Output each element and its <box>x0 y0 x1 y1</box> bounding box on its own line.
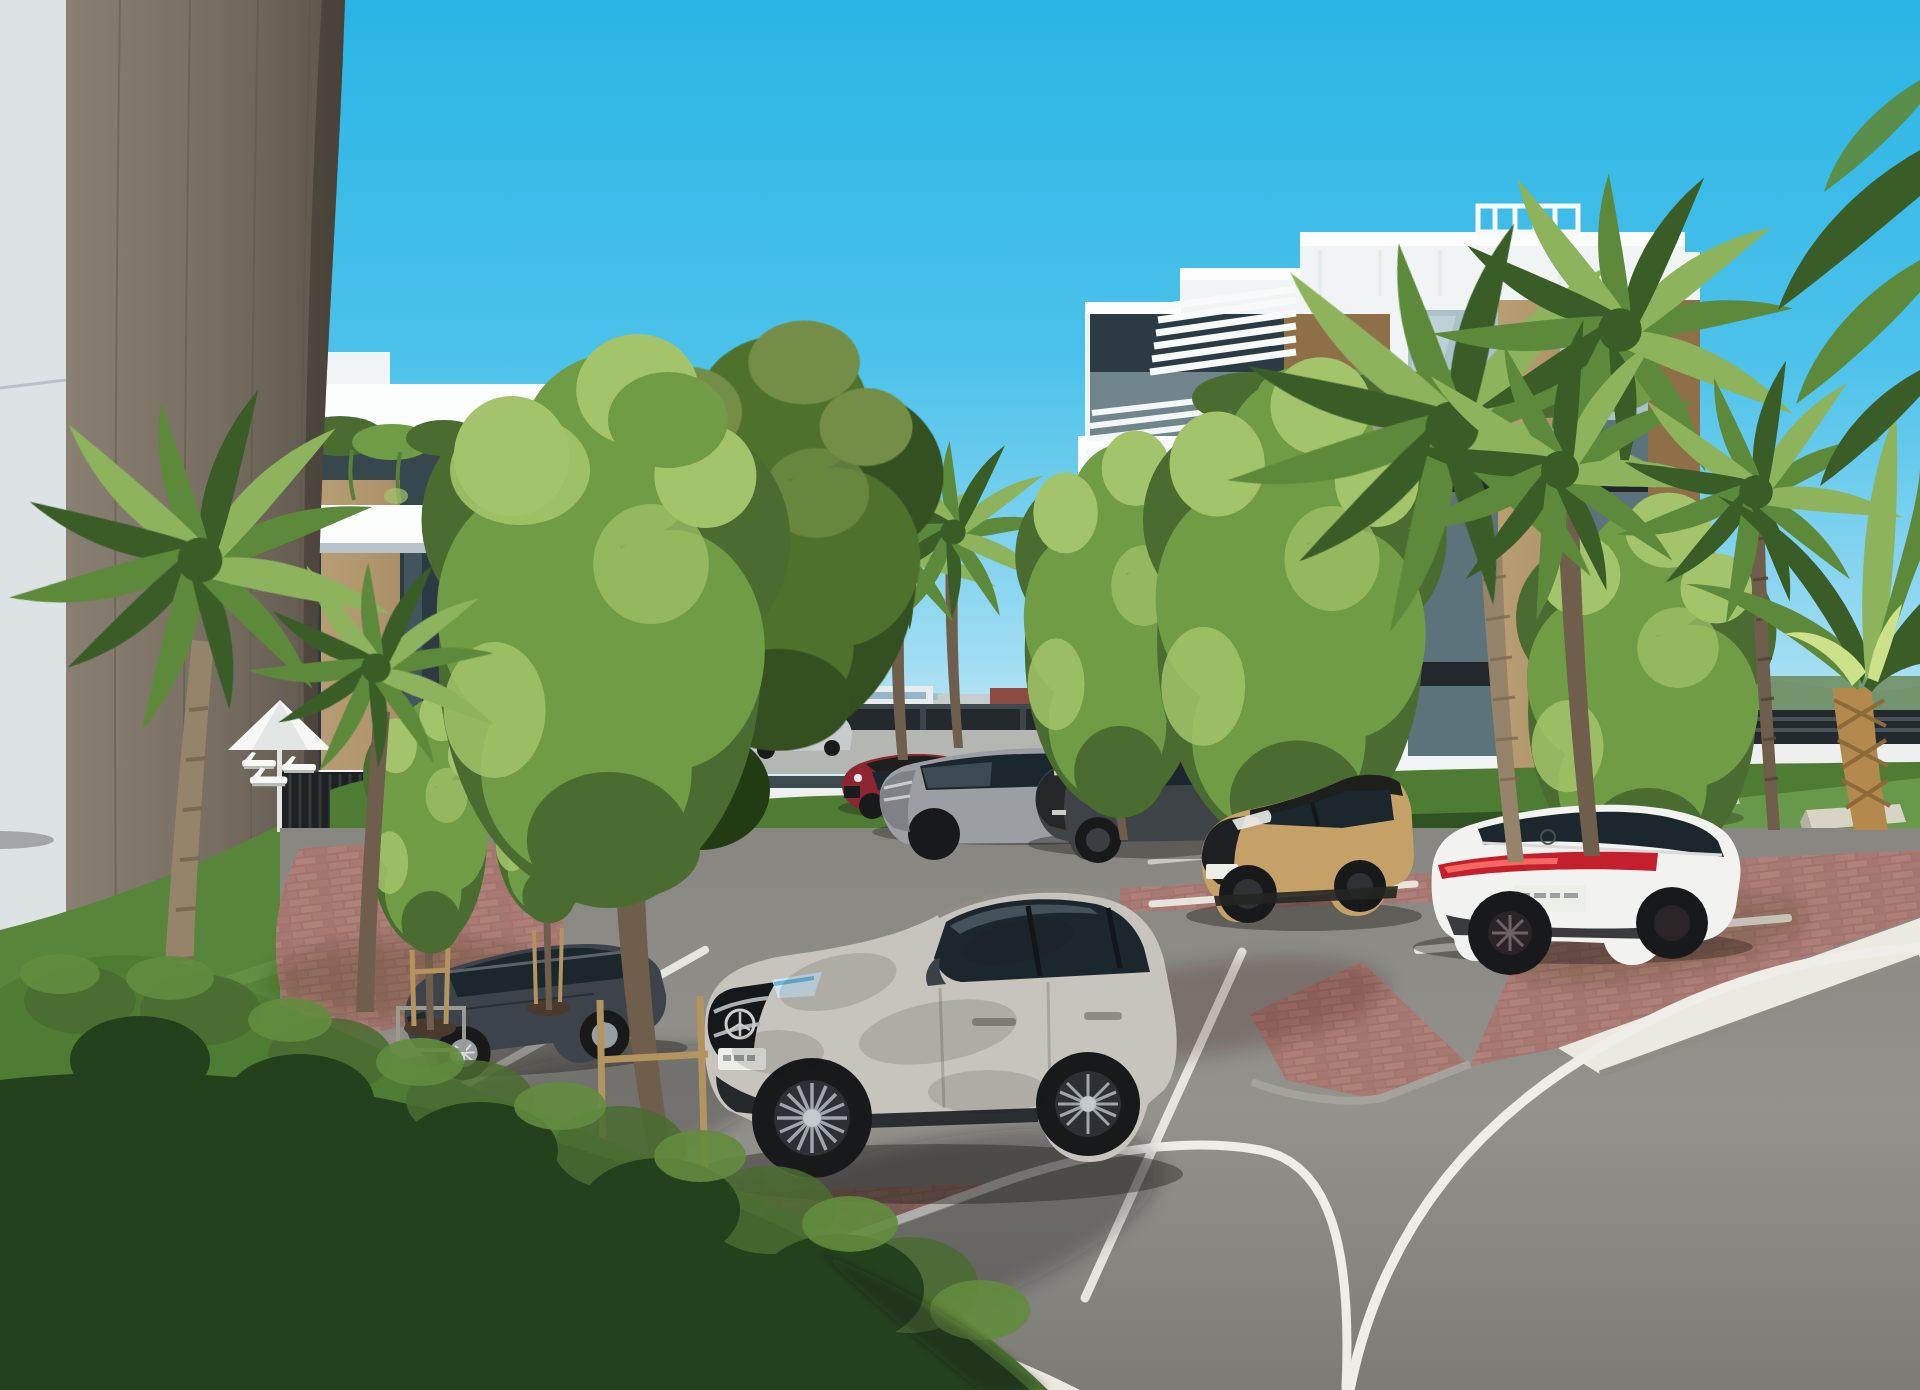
silver-suv-front-wheel <box>752 1058 872 1178</box>
render-canvas <box>0 0 1920 1390</box>
scene <box>0 0 1920 1390</box>
silver-suv-rear-wheel <box>1036 1052 1140 1156</box>
